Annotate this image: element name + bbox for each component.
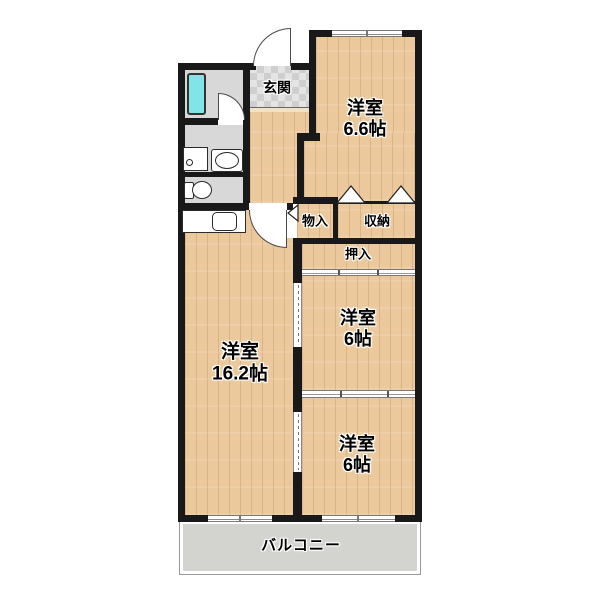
hallway-floor-upper	[250, 112, 309, 133]
entrance-label: 玄関	[263, 80, 291, 97]
oshiire-fusuma-doors	[302, 269, 415, 276]
room-66-name: 洋室	[343, 98, 386, 119]
oshiire-label: 押入	[345, 246, 371, 261]
room-66-size: 6.6帖	[343, 119, 386, 140]
room-partition-sliding-doors	[302, 390, 415, 398]
kitchen-sink	[212, 212, 237, 231]
mid-room-size: 6帖	[340, 329, 376, 350]
window	[322, 515, 395, 522]
drain-circle	[186, 159, 193, 166]
bifold-door-icon	[386, 185, 416, 204]
bottom-room-size: 6帖	[339, 455, 375, 476]
wall-segment	[309, 30, 316, 141]
wall-segment	[293, 347, 302, 412]
wall-segment	[178, 172, 250, 177]
wall-segment	[178, 203, 249, 210]
mid-room-label: 洋室 6帖	[340, 308, 376, 350]
floor-plan: 玄関 洋室 6.6帖 物入 収納 押入 洋室 16.2帖 洋室 6帖 洋室 6帖…	[0, 0, 600, 600]
wall-segment	[415, 30, 422, 522]
vanity-basin-oval	[215, 152, 239, 169]
bottom-room-name: 洋室	[339, 434, 375, 455]
sliding-door	[293, 412, 302, 472]
wall-segment	[297, 133, 304, 204]
shunou-label: 収納	[364, 213, 390, 228]
bifold-door-icon	[336, 185, 366, 204]
main-room-name: 洋室	[212, 342, 268, 364]
entrance-door-arc	[253, 28, 291, 66]
hallway-floor-lower	[250, 133, 297, 203]
mid-room-name: 洋室	[340, 308, 376, 329]
monoire-label: 物入	[302, 213, 328, 228]
wall-segment	[243, 63, 250, 210]
window	[208, 515, 272, 522]
wall-segment	[178, 63, 185, 522]
monoire-door-icon	[286, 204, 299, 222]
bathtub	[187, 73, 206, 115]
window	[332, 30, 402, 37]
wall-segment	[293, 472, 302, 522]
toilet-bowl	[192, 181, 212, 199]
wall-segment	[293, 238, 422, 244]
wall-segment	[333, 204, 338, 238]
balcony-label: バルコニー	[261, 537, 341, 555]
wall-segment	[293, 238, 302, 283]
main-room-label: 洋室 16.2帖	[212, 342, 268, 387]
bottom-room-label: 洋室 6帖	[339, 434, 375, 476]
main-room-size: 16.2帖	[212, 364, 268, 386]
sliding-door	[293, 283, 302, 347]
room-66-label: 洋室 6.6帖	[343, 98, 386, 140]
